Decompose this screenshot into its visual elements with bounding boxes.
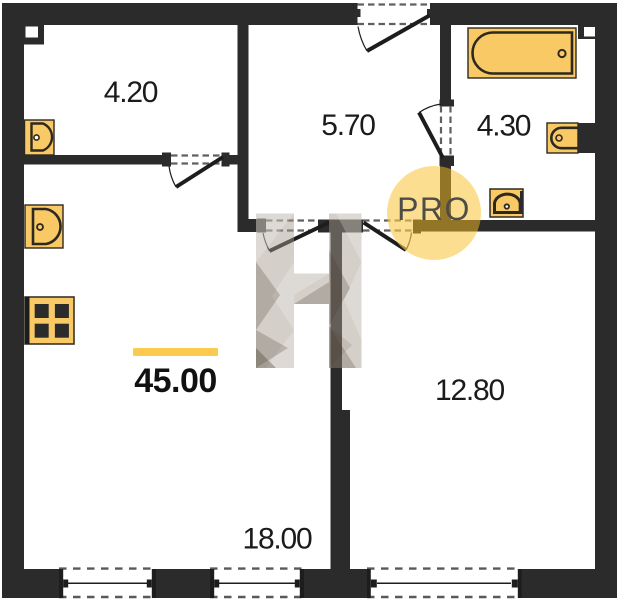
svg-text:12.80: 12.80 <box>435 374 505 407</box>
svg-text:4.30: 4.30 <box>477 110 531 143</box>
svg-text:45.00: 45.00 <box>134 362 217 400</box>
svg-text:18.00: 18.00 <box>242 523 312 556</box>
svg-text:5.70: 5.70 <box>321 109 375 142</box>
svg-text:4.20: 4.20 <box>104 76 158 109</box>
svg-text:PRO: PRO <box>397 191 471 227</box>
